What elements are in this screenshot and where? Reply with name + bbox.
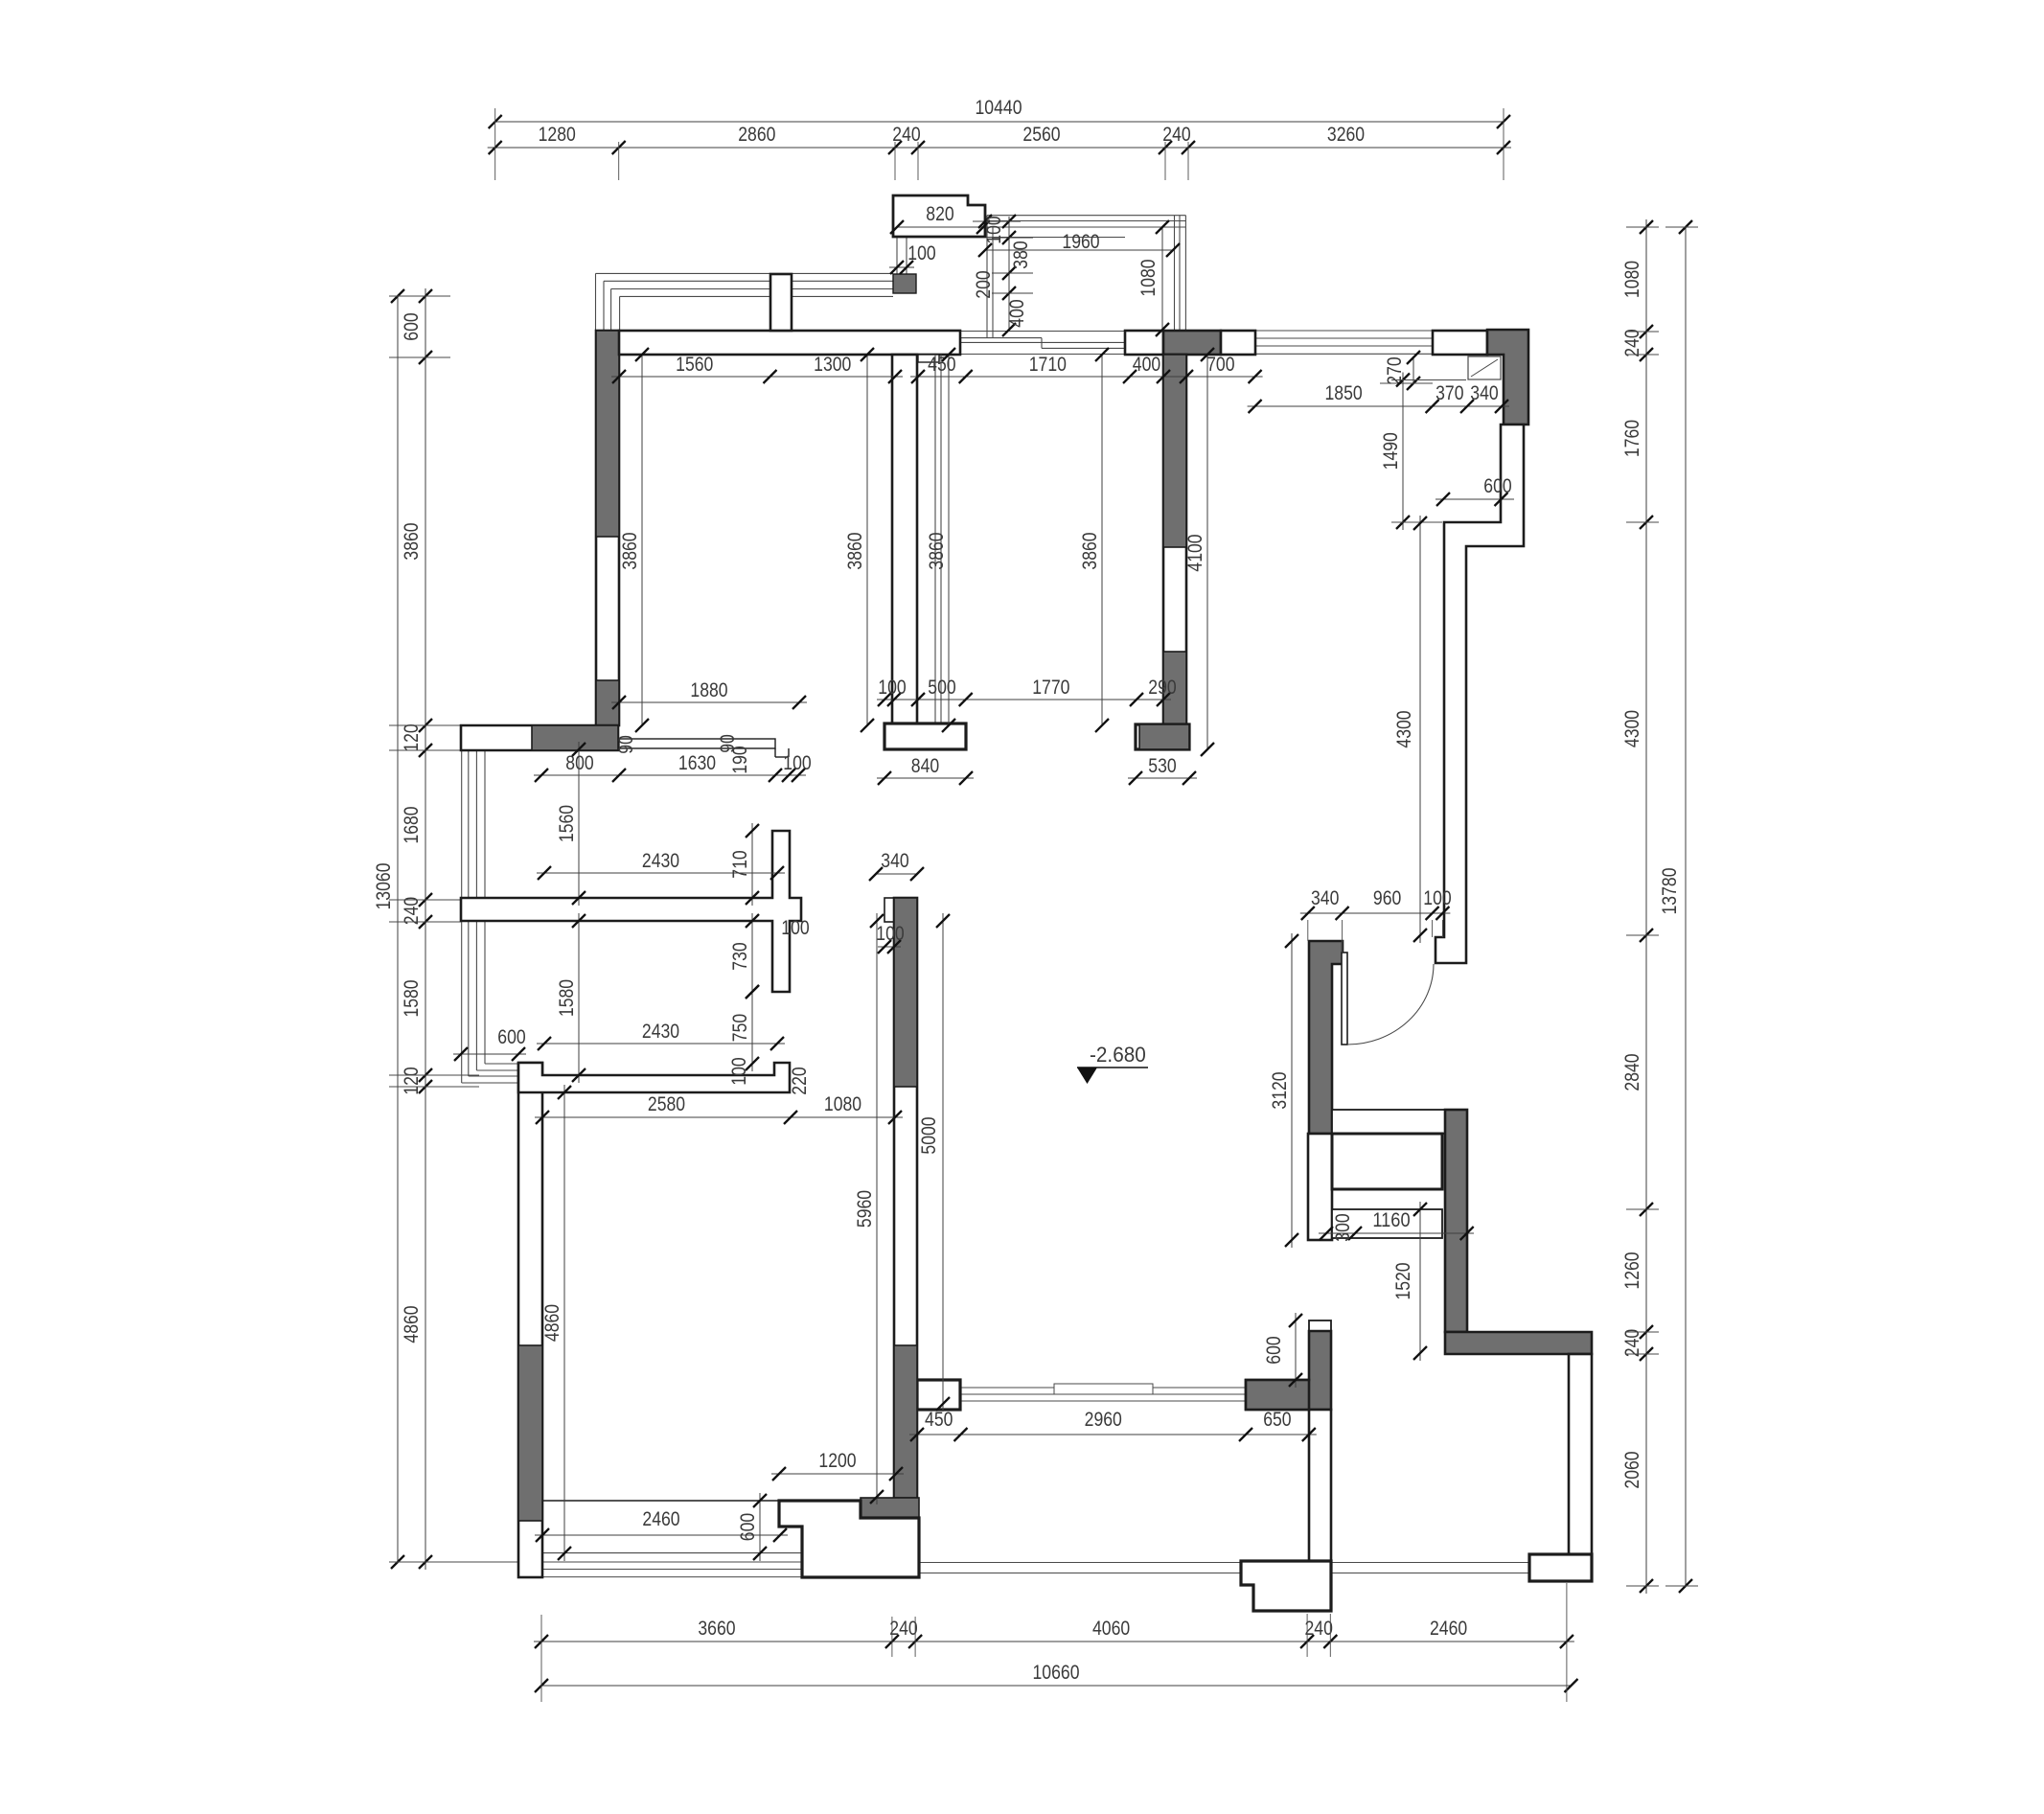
svg-text:1580: 1580 (401, 979, 423, 1017)
svg-text:600: 600 (497, 1026, 525, 1048)
svg-text:1560: 1560 (556, 805, 578, 842)
svg-text:400: 400 (1006, 299, 1028, 327)
svg-text:4100: 4100 (1184, 534, 1206, 571)
svg-text:120: 120 (401, 1067, 423, 1094)
svg-text:240: 240 (892, 124, 920, 146)
svg-text:1880: 1880 (690, 679, 727, 701)
svg-text:240: 240 (889, 1618, 917, 1640)
svg-text:1710: 1710 (1029, 354, 1067, 376)
svg-text:100: 100 (876, 923, 904, 945)
svg-text:530: 530 (1148, 755, 1176, 777)
svg-text:4060: 4060 (1092, 1618, 1130, 1640)
svg-text:2060: 2060 (1621, 1451, 1643, 1488)
svg-text:1560: 1560 (676, 354, 713, 376)
svg-text:960: 960 (1373, 887, 1401, 909)
svg-text:1520: 1520 (1392, 1262, 1414, 1299)
svg-text:190: 190 (729, 746, 751, 773)
svg-text:710: 710 (729, 850, 751, 878)
svg-text:750: 750 (729, 1014, 751, 1042)
svg-text:3860: 3860 (401, 522, 423, 560)
svg-text:700: 700 (1206, 354, 1234, 376)
svg-text:1160: 1160 (1372, 1209, 1410, 1231)
svg-text:820: 820 (926, 203, 953, 225)
svg-text:1770: 1770 (1032, 677, 1069, 699)
svg-text:3660: 3660 (698, 1618, 735, 1640)
svg-text:4300: 4300 (1393, 710, 1415, 747)
svg-text:1280: 1280 (539, 124, 576, 146)
svg-text:100: 100 (907, 242, 935, 264)
svg-text:240: 240 (1621, 329, 1643, 356)
svg-text:1960: 1960 (1062, 231, 1099, 253)
svg-text:500: 500 (928, 677, 955, 699)
svg-text:300: 300 (1332, 1213, 1354, 1241)
svg-text:100: 100 (783, 752, 811, 774)
svg-text:3860: 3860 (619, 532, 641, 569)
svg-text:2460: 2460 (642, 1508, 679, 1530)
svg-text:100: 100 (983, 216, 1005, 243)
svg-text:240: 240 (1621, 1329, 1643, 1357)
svg-text:240: 240 (401, 897, 423, 925)
svg-text:1260: 1260 (1621, 1251, 1643, 1289)
svg-text:1080: 1080 (1621, 261, 1643, 298)
svg-text:730: 730 (729, 942, 751, 970)
svg-text:3860: 3860 (1079, 532, 1101, 569)
svg-text:380: 380 (1010, 241, 1032, 268)
svg-text:1850: 1850 (1325, 382, 1363, 404)
svg-text:13780: 13780 (1659, 868, 1681, 915)
svg-text:4300: 4300 (1621, 710, 1643, 747)
svg-text:600: 600 (1483, 475, 1511, 497)
svg-text:2560: 2560 (1022, 124, 1060, 146)
svg-text:1760: 1760 (1621, 420, 1643, 457)
svg-text:370: 370 (1435, 382, 1463, 404)
svg-text:240: 240 (1162, 124, 1190, 146)
svg-text:240: 240 (1305, 1618, 1333, 1640)
svg-text:650: 650 (1263, 1409, 1291, 1431)
svg-text:600: 600 (737, 1513, 759, 1541)
svg-text:1300: 1300 (814, 354, 851, 376)
svg-text:3260: 3260 (1327, 124, 1365, 146)
svg-text:4860: 4860 (541, 1304, 563, 1342)
svg-text:1680: 1680 (401, 806, 423, 843)
svg-text:5960: 5960 (854, 1190, 876, 1228)
svg-text:3860: 3860 (926, 532, 948, 569)
svg-text:90: 90 (615, 735, 637, 754)
svg-text:100: 100 (781, 917, 809, 939)
svg-text:1080: 1080 (1137, 259, 1160, 296)
svg-text:600: 600 (1263, 1336, 1285, 1364)
svg-text:4860: 4860 (401, 1305, 423, 1343)
svg-text:450: 450 (928, 354, 955, 376)
svg-text:100: 100 (1423, 887, 1451, 909)
svg-text:3860: 3860 (844, 532, 866, 569)
svg-text:1490: 1490 (1380, 432, 1402, 470)
svg-text:400: 400 (1133, 354, 1160, 376)
svg-text:220: 220 (789, 1067, 811, 1094)
svg-text:2960: 2960 (1085, 1409, 1122, 1431)
svg-text:600: 600 (401, 312, 423, 340)
svg-text:5000: 5000 (918, 1116, 940, 1154)
svg-text:450: 450 (925, 1409, 953, 1431)
svg-text:290: 290 (1148, 677, 1176, 699)
svg-text:2430: 2430 (642, 850, 679, 872)
svg-text:1080: 1080 (824, 1093, 861, 1115)
svg-text:1630: 1630 (678, 752, 716, 774)
svg-text:10660: 10660 (1033, 1662, 1080, 1684)
svg-text:800: 800 (565, 752, 593, 774)
svg-text:1200: 1200 (818, 1450, 856, 1472)
svg-text:340: 340 (1311, 887, 1339, 909)
svg-text:120: 120 (401, 723, 423, 751)
svg-text:10440: 10440 (976, 97, 1022, 119)
svg-text:13060: 13060 (373, 863, 395, 910)
svg-text:840: 840 (911, 755, 939, 777)
svg-text:2860: 2860 (738, 124, 775, 146)
svg-text:100: 100 (728, 1057, 750, 1085)
svg-text:2840: 2840 (1621, 1053, 1643, 1091)
svg-text:-2.680: -2.680 (1090, 1043, 1146, 1067)
svg-text:1580: 1580 (556, 979, 578, 1017)
svg-text:340: 340 (881, 850, 908, 872)
svg-text:2430: 2430 (642, 1021, 679, 1043)
svg-text:3120: 3120 (1269, 1071, 1291, 1109)
svg-text:2580: 2580 (648, 1093, 685, 1115)
svg-text:200: 200 (973, 270, 995, 298)
svg-text:100: 100 (878, 677, 906, 699)
svg-text:340: 340 (1470, 382, 1498, 404)
svg-text:2460: 2460 (1430, 1618, 1467, 1640)
